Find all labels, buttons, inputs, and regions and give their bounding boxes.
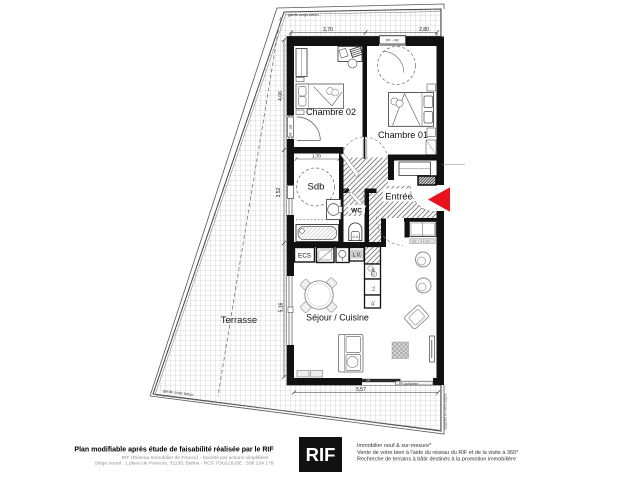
svg-text:WC: WC: [351, 208, 362, 215]
svg-text:Siège social : 1 place de Pave: Siège social : 1 place de Paveurs, 31130…: [95, 460, 274, 466]
svg-text:2,70: 2,70: [323, 27, 333, 33]
svg-text:Recherche de terrains à bâtir: Recherche de terrains à bâtir destinés à…: [357, 456, 516, 462]
svg-text:Chambre 02: Chambre 02: [306, 107, 356, 117]
svg-text:garde corps béton: garde corps béton: [288, 13, 319, 17]
svg-text:1,70: 1,70: [312, 154, 321, 159]
svg-text:PF - VR: PF - VR: [289, 124, 293, 136]
svg-text:3,52: 3,52: [276, 187, 282, 197]
svg-text:2,80: 2,80: [419, 27, 429, 33]
svg-text:RIF: RIF: [306, 444, 336, 465]
svg-text:Plan modifiable après étude de: Plan modifiable après étude de faisabili…: [74, 446, 274, 453]
svg-text:Cui.: Cui.: [371, 267, 376, 275]
svg-text:Fr.: Fr.: [371, 300, 376, 305]
svg-text:RIF (Réseau Immobilier de Fran: RIF (Réseau Immobilier de France) - Soci…: [122, 455, 269, 461]
svg-text:Entrée: Entrée: [385, 192, 412, 202]
svg-text:PF coulissante: PF coulissante: [399, 381, 418, 385]
svg-text:LL: LL: [371, 285, 376, 291]
svg-text:5,16: 5,16: [279, 302, 285, 312]
svg-text:Chambre 01: Chambre 01: [378, 130, 428, 140]
svg-text:Immobilier neuf & sur-mesure*: Immobilier neuf & sur-mesure*: [357, 443, 432, 449]
svg-text:Sdb: Sdb: [308, 182, 325, 193]
svg-text:PF - VR: PF - VR: [386, 39, 399, 43]
svg-text:4,06: 4,06: [278, 91, 284, 101]
svg-text:ECS: ECS: [298, 253, 311, 260]
svg-text:VS: VS: [425, 240, 429, 244]
svg-text:séparatif en verre dépoli: séparatif en verre dépoli: [444, 393, 448, 430]
svg-text:Terrasse: Terrasse: [221, 315, 257, 326]
svg-text:5,57: 5,57: [356, 387, 366, 393]
svg-text:Vente de votre bien à l'aide d: Vente de votre bien à l'aide du réseau d…: [357, 450, 518, 456]
svg-text:VS: VS: [412, 240, 416, 244]
svg-text:VR: VR: [366, 379, 370, 383]
svg-text:Séjour / Cuisine: Séjour / Cuisine: [306, 313, 369, 323]
svg-text:L.V.: L.V.: [353, 253, 361, 259]
